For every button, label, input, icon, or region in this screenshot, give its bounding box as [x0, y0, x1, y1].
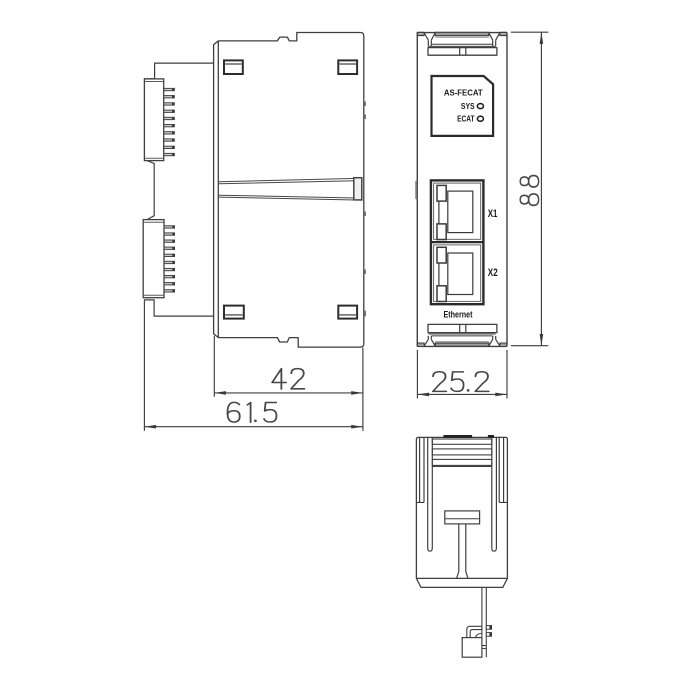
svg-text:AS-FECAT: AS-FECAT	[444, 88, 483, 98]
svg-text:Ethernet: Ethernet	[444, 309, 473, 319]
svg-text:SYS: SYS	[461, 101, 475, 111]
svg-text:X1: X1	[488, 208, 498, 220]
svg-text:ECAT: ECAT	[457, 114, 475, 124]
svg-text:X2: X2	[488, 267, 498, 279]
